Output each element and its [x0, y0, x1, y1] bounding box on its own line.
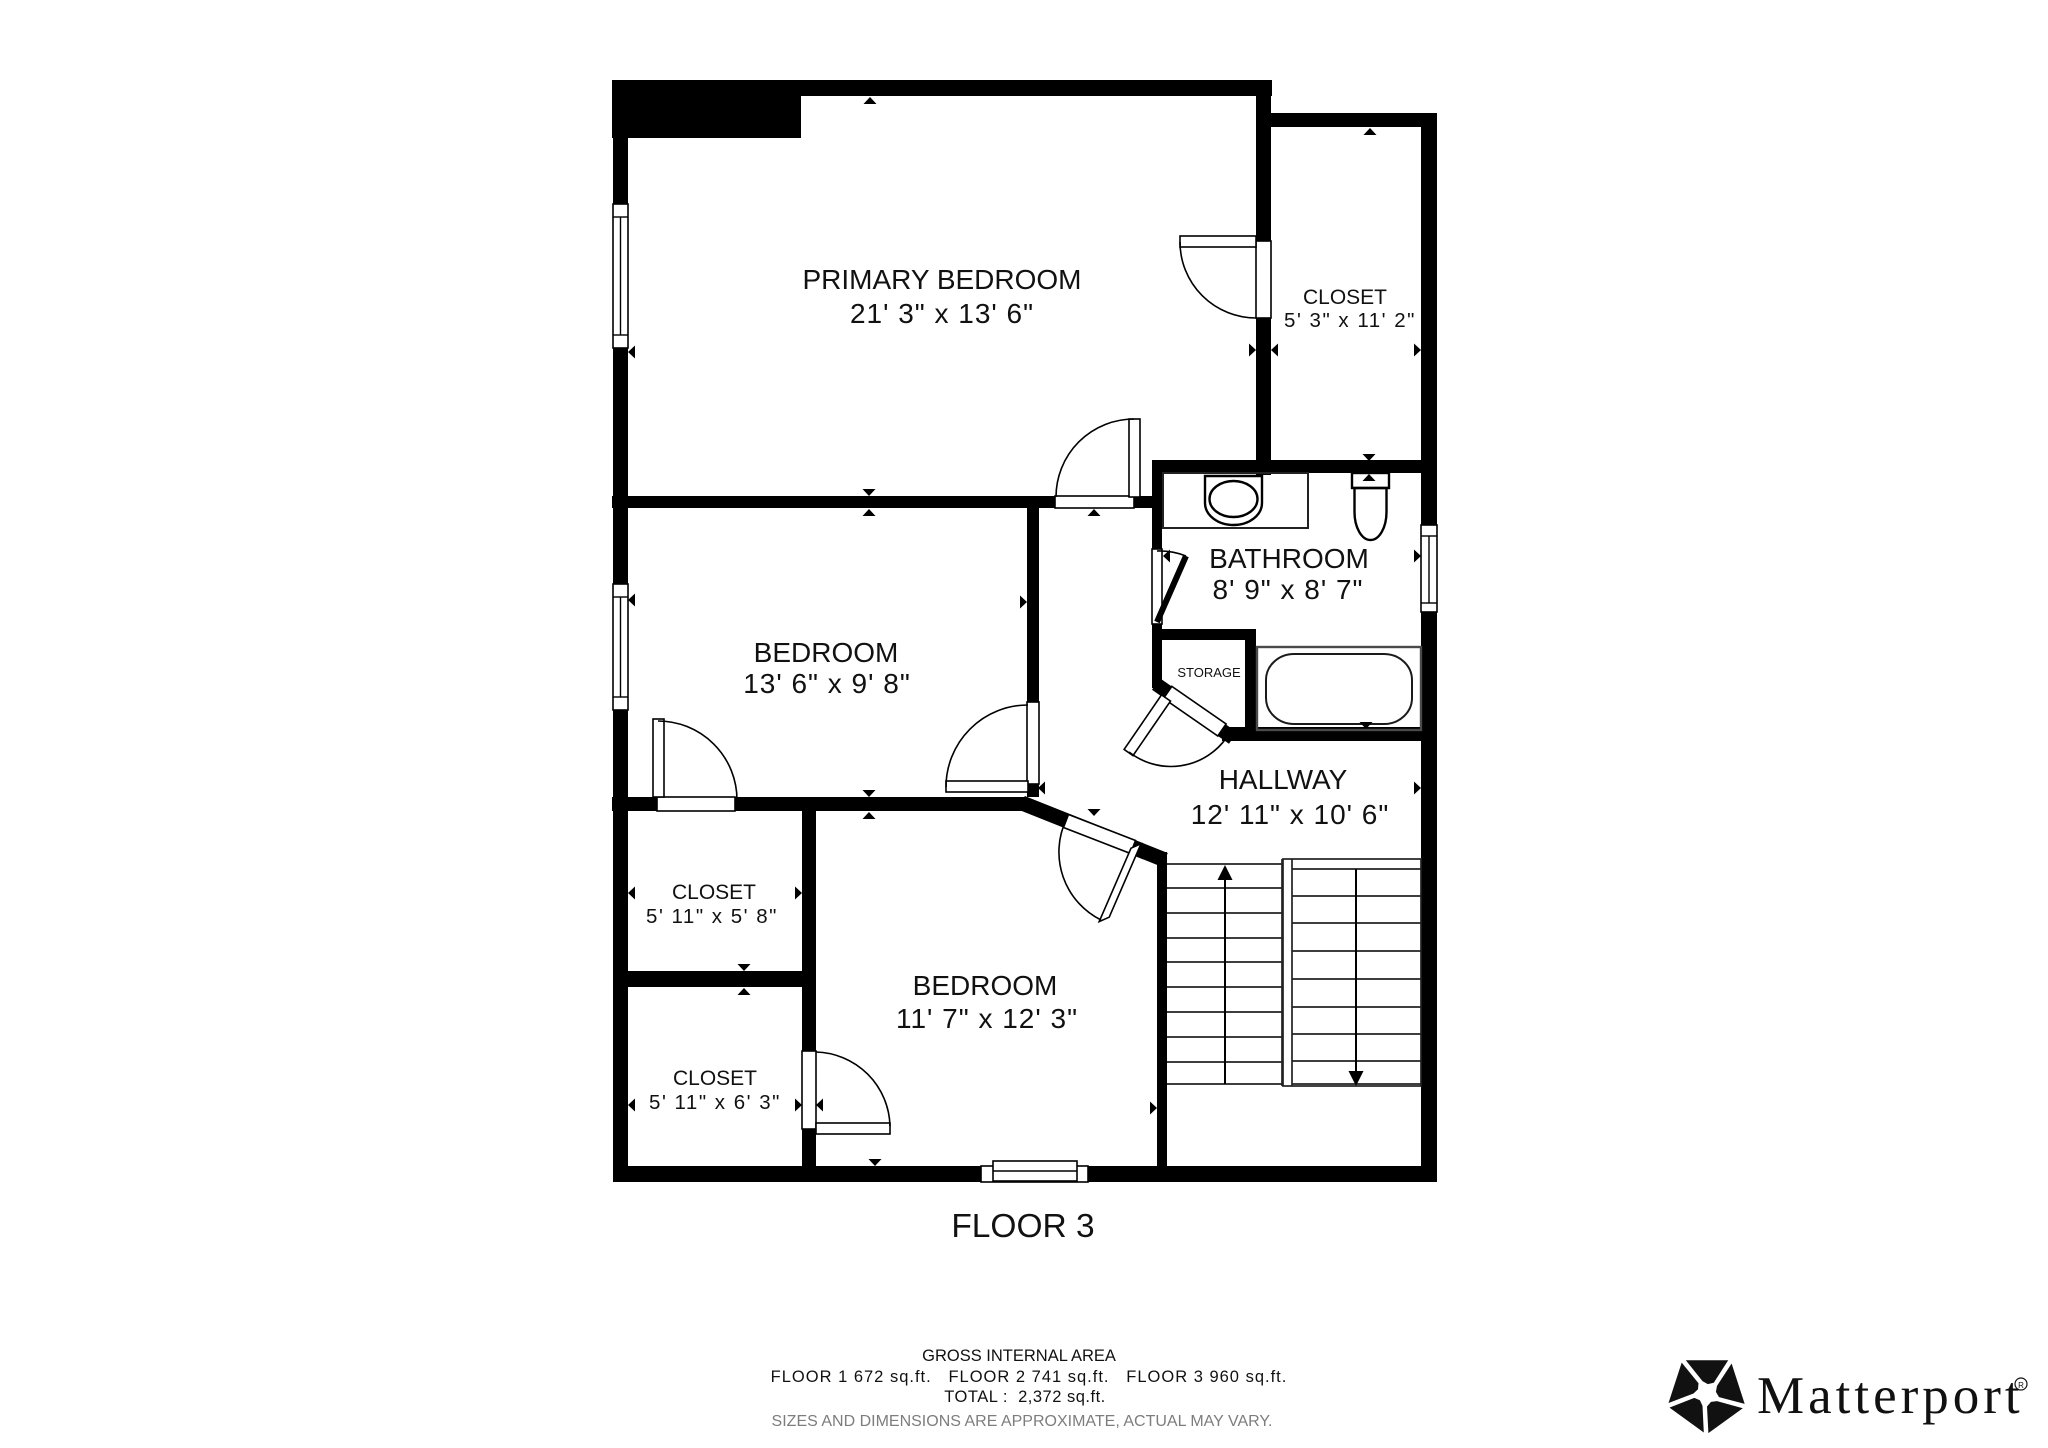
svg-text:HALLWAY: HALLWAY: [1219, 764, 1348, 795]
svg-text:CLOSET: CLOSET: [673, 1067, 757, 1090]
svg-text:PRIMARY BEDROOM: PRIMARY BEDROOM: [802, 264, 1081, 295]
svg-text:11' 7" x 12' 3": 11' 7" x 12' 3": [896, 1003, 1078, 1034]
svg-text:BATHROOM: BATHROOM: [1209, 543, 1369, 574]
svg-text:8' 9" x 8' 7": 8' 9" x 8' 7": [1213, 574, 1364, 605]
svg-text:CLOSET: CLOSET: [1303, 286, 1387, 309]
svg-text:BEDROOM: BEDROOM: [754, 637, 899, 668]
svg-text:GROSS INTERNAL AREA: GROSS INTERNAL AREA: [922, 1347, 1116, 1365]
svg-text:5' 11" x 5' 8": 5' 11" x 5' 8": [646, 905, 778, 928]
svg-text:CLOSET: CLOSET: [672, 881, 756, 904]
svg-text:FLOOR 1 672 sq.ft. FLOOR 2 7: FLOOR 1 672 sq.ft. FLOOR 2 741 sq.ft. FL…: [771, 1368, 1288, 1386]
svg-text:STORAGE: STORAGE: [1177, 665, 1241, 680]
svg-text:12' 11" x 10' 6": 12' 11" x 10' 6": [1191, 799, 1390, 830]
svg-text:13' 6" x 9' 8": 13' 6" x 9' 8": [743, 668, 911, 699]
svg-text:TOTAL : 2,372 sq.ft.: TOTAL : 2,372 sq.ft.: [944, 1388, 1106, 1406]
svg-text:21' 3" x 13' 6": 21' 3" x 13' 6": [850, 298, 1034, 329]
svg-text:5' 11" x 6' 3": 5' 11" x 6' 3": [649, 1091, 781, 1114]
svg-text:SIZES AND DIMENSIONS ARE APPRO: SIZES AND DIMENSIONS ARE APPROXIMATE, AC…: [772, 1413, 1273, 1430]
svg-text:5' 3" x 11' 2": 5' 3" x 11' 2": [1284, 309, 1416, 332]
svg-text:R: R: [2018, 1381, 2024, 1390]
svg-text:Matterport: Matterport: [1757, 1367, 2024, 1425]
svg-text:BEDROOM: BEDROOM: [913, 970, 1058, 1001]
svg-text:FLOOR 3: FLOOR 3: [951, 1208, 1094, 1245]
